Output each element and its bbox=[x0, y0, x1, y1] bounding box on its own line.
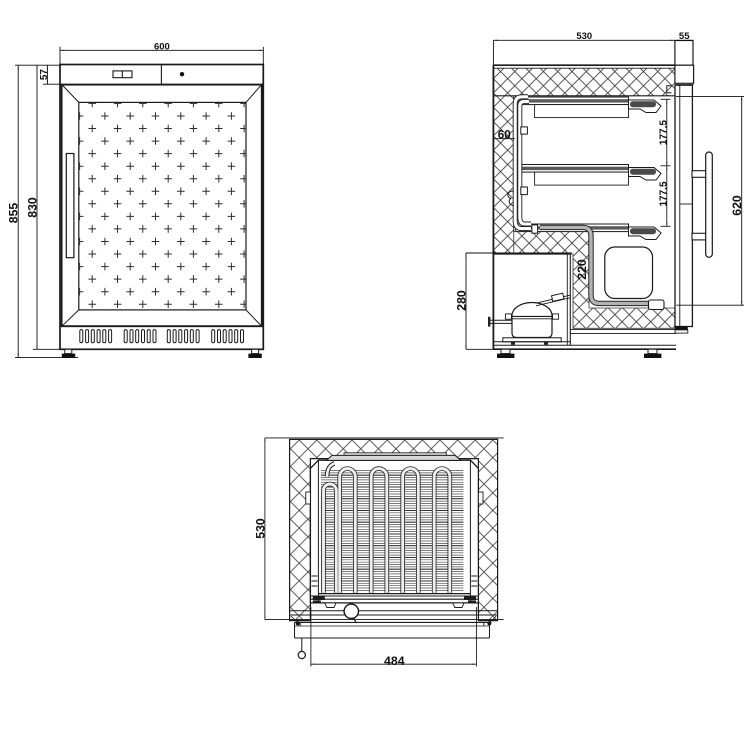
svg-text:855: 855 bbox=[7, 203, 21, 224]
svg-text:620: 620 bbox=[730, 195, 744, 216]
svg-text:530: 530 bbox=[253, 518, 267, 539]
svg-text:220: 220 bbox=[575, 259, 589, 280]
svg-text:280: 280 bbox=[455, 290, 469, 311]
svg-text:60: 60 bbox=[498, 128, 512, 141]
svg-text:177.5: 177.5 bbox=[658, 181, 669, 206]
svg-text:484: 484 bbox=[384, 654, 405, 668]
svg-text:530: 530 bbox=[576, 31, 592, 42]
svg-text:830: 830 bbox=[26, 197, 40, 218]
svg-text:57: 57 bbox=[39, 69, 50, 81]
svg-text:177.5: 177.5 bbox=[658, 120, 669, 145]
svg-text:55: 55 bbox=[679, 31, 690, 42]
svg-text:600: 600 bbox=[154, 42, 170, 53]
